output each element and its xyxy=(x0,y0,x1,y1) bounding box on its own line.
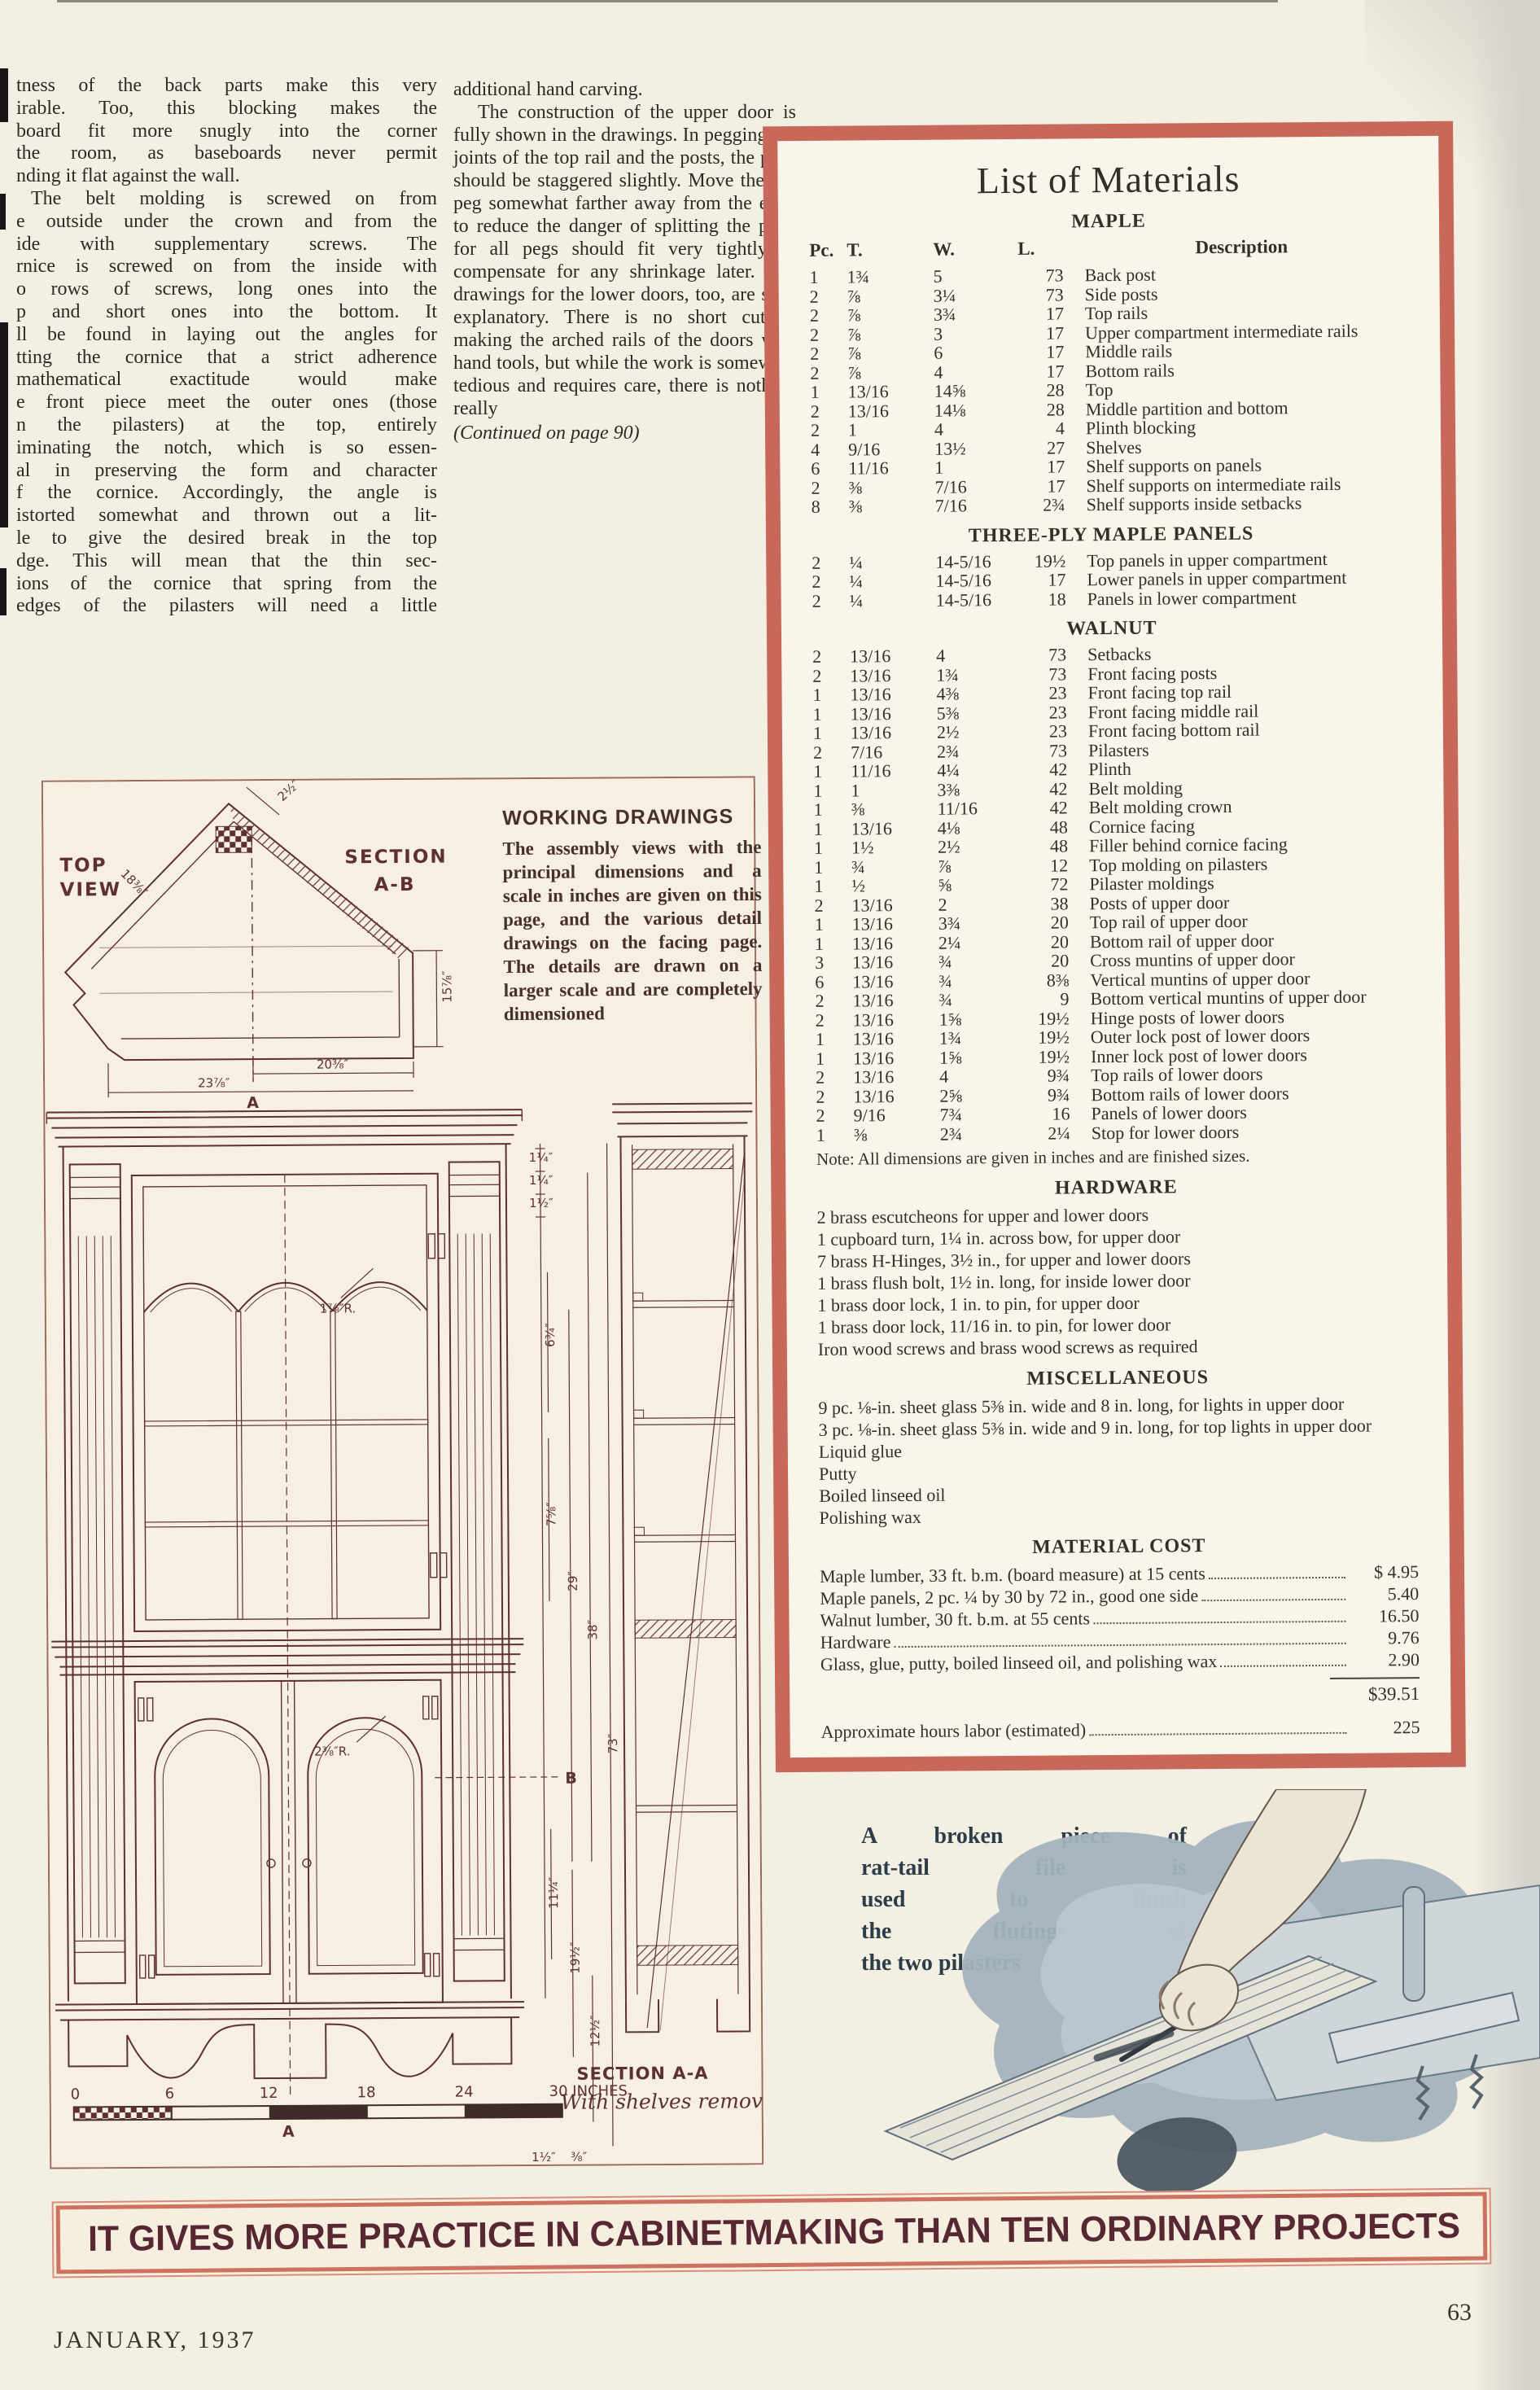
cell-width: ¾ xyxy=(938,990,1023,1009)
cell-thickness: 13/16 xyxy=(853,1029,939,1048)
cell-pieces: 2 xyxy=(812,591,850,611)
cell-thickness: 13/16 xyxy=(851,703,937,723)
cell-length: 19½ xyxy=(1024,1047,1081,1066)
cell-pieces: 1 xyxy=(813,704,851,724)
cell-pieces: 4 xyxy=(811,440,848,459)
cost-label: Hardware xyxy=(820,1631,891,1653)
cell-description: Shelf supports on intermediate rails xyxy=(1076,474,1410,496)
article-line: ll be found in laying out the angles for xyxy=(16,324,437,347)
cell-width: 4⅛ xyxy=(938,817,1022,837)
dot-leader xyxy=(1089,1732,1346,1736)
cell-length: 48 xyxy=(1022,836,1079,856)
cell-thickness: 13/16 xyxy=(850,685,936,704)
cell-thickness: ⅞ xyxy=(847,362,934,382)
cell-width: 4 xyxy=(934,361,1018,381)
cell-width: 1⅝ xyxy=(939,1009,1024,1028)
article-column-1: tness of the back parts make this veryir… xyxy=(16,75,437,618)
cell-pieces: 1 xyxy=(813,724,851,743)
top-view-label: TOP xyxy=(59,855,107,876)
cell-width: 3⅜ xyxy=(937,779,1022,799)
cell-pieces: 2 xyxy=(812,666,850,685)
cell-description: Top xyxy=(1076,378,1410,400)
cell-description: Side posts xyxy=(1075,282,1409,304)
article-line: The belt molding is screwed on from xyxy=(16,188,437,211)
cell-thickness: ⅞ xyxy=(847,305,934,325)
cost-row: Glass, glue, putty, boiled linseed oil, … xyxy=(820,1648,1420,1675)
misc-list: 9 pc. ⅛-in. sheet glass 5⅜ in. wide and … xyxy=(818,1392,1418,1529)
cell-description: Pilasters xyxy=(1078,738,1412,760)
cell-pieces: 1 xyxy=(815,934,852,953)
cell-thickness: 9/16 xyxy=(854,1105,940,1125)
continued-note: (Continued on page 90) xyxy=(453,422,796,444)
header-l: L. xyxy=(1017,238,1074,260)
article-line: the room, as baseboards never permit xyxy=(16,142,437,165)
materials-header-row: Pc. T. W. L. Description xyxy=(809,235,1408,261)
cell-pieces: 2 xyxy=(810,287,847,306)
article-line: dge. This will mean that the thin sec- xyxy=(16,550,437,573)
cell-thickness: 13/16 xyxy=(851,818,938,838)
cell-description: Belt molding xyxy=(1078,777,1412,799)
radius-label-lower: 2⅜″R. xyxy=(314,1744,350,1758)
cell-description: Top rails of lower doors xyxy=(1081,1063,1415,1085)
article-line: e front piece meet the outer ones (those xyxy=(16,392,437,414)
cell-width: 5 xyxy=(933,266,1017,286)
dot-leader xyxy=(1220,1665,1346,1667)
table-row: 8 ⅜ 7/16 2¾ Shelf supports inside setbac… xyxy=(812,492,1411,516)
dot-leader xyxy=(1209,1577,1345,1579)
cell-thickness: 13/16 xyxy=(850,665,936,685)
cell-description: Upper compartment intermediate rails xyxy=(1075,321,1409,343)
scale-tick: 0 xyxy=(71,2086,81,2103)
cell-description: Cross muntins of upper door xyxy=(1080,948,1414,970)
cell-length: 17 xyxy=(1018,304,1075,323)
article-line: tness of the back parts make this very xyxy=(16,75,437,98)
article-line: irable. Too, this blocking makes the xyxy=(16,98,437,120)
section-marker-a-bottom: A xyxy=(282,2123,295,2141)
cell-thickness: 11/16 xyxy=(851,761,937,781)
header-pc: Pc. xyxy=(809,240,847,261)
cell-length: 2¼ xyxy=(1025,1123,1082,1143)
cell-pieces: 1 xyxy=(813,781,851,800)
cell-length: 4 xyxy=(1019,418,1076,438)
cell-pieces: 1 xyxy=(816,1030,853,1049)
cell-width: 7¾ xyxy=(940,1105,1025,1124)
cell-length: 20 xyxy=(1023,951,1080,970)
article-column-2: additional hand carving. The constructio… xyxy=(453,78,796,444)
cell-description: Cornice facing xyxy=(1079,815,1413,837)
cell-thickness: 13/16 xyxy=(851,723,937,742)
issue-date: JANUARY, 1937 xyxy=(54,2327,256,2354)
dim-label: 1½″ xyxy=(529,1196,553,1210)
cell-pieces: 2 xyxy=(812,647,850,667)
cell-description: Middle partition and bottom xyxy=(1076,397,1410,419)
section-aa-subtitle: With shelves removed xyxy=(561,2089,764,2114)
cell-thickness: ⅞ xyxy=(847,286,934,305)
cell-length: 72 xyxy=(1022,874,1079,894)
cell-pieces: 2 xyxy=(816,1087,853,1106)
cell-length: 73 xyxy=(1022,741,1078,760)
cell-thickness: 11/16 xyxy=(848,458,934,478)
banner-frame: IT GIVES MORE PRACTICE IN CABINETMAKING … xyxy=(56,2192,1488,2274)
cell-length: 73 xyxy=(1021,645,1078,664)
header-w: W. xyxy=(933,239,1017,260)
cell-thickness: 13/16 xyxy=(853,1048,939,1067)
article-line: nding it flat against the wall. xyxy=(16,165,437,188)
cell-pieces: 2 xyxy=(815,991,852,1011)
cell-pieces: 1 xyxy=(814,857,851,877)
cell-width: 3¾ xyxy=(934,304,1018,324)
working-drawings-note: WORKING DRAWINGS The assembly views with… xyxy=(502,805,763,1026)
cell-pieces: 2 xyxy=(811,421,848,440)
cell-thickness: 13/16 xyxy=(852,971,938,991)
section-marker-b: B xyxy=(565,1770,577,1788)
cell-width: 2¾ xyxy=(937,741,1022,760)
cell-length: 23 xyxy=(1022,703,1078,722)
section-marker-a: A xyxy=(247,1094,259,1112)
cell-length: 42 xyxy=(1022,759,1078,779)
cell-description: Bottom vertical muntins of upper door xyxy=(1080,987,1414,1009)
cell-description: Posts of upper door xyxy=(1079,891,1413,913)
cell-pieces: 2 xyxy=(816,1106,854,1126)
cell-length: 23 xyxy=(1022,721,1078,741)
cell-length: 8⅜ xyxy=(1023,970,1080,990)
cell-description: Filler behind cornice facing xyxy=(1079,834,1413,856)
cell-pieces: 6 xyxy=(815,972,852,991)
cell-length: 42 xyxy=(1022,798,1079,817)
cell-description: Bottom rail of upper door xyxy=(1080,930,1414,952)
scale-tick: 6 xyxy=(165,2086,175,2103)
cell-width: 4 xyxy=(936,646,1021,665)
article-paragraph: additional hand carving. xyxy=(453,78,796,101)
article-line: p and short ones into the bottom. It xyxy=(16,301,437,324)
cell-length: 18 xyxy=(1021,589,1078,609)
cell-width: 4 xyxy=(934,419,1019,439)
cell-description: Top rail of upper door xyxy=(1080,910,1414,932)
cell-width: 2¼ xyxy=(938,932,1023,952)
cost-total-row: $39.51 xyxy=(820,1677,1420,1709)
labor-label: Approximate hours labor (estimated) xyxy=(820,1718,1086,1743)
dim-label: ⅜″ xyxy=(571,2150,588,2165)
walnut-rows: 2 13/16 4 73 Setbacks 2 13/16 1¾ 73 Fron… xyxy=(812,642,1415,1145)
working-drawings-body: The assembly views with the principal di… xyxy=(502,835,763,1026)
cost-label: Maple lumber, 33 ft. b.m. (board measure… xyxy=(820,1562,1205,1587)
cell-width: 2¾ xyxy=(940,1123,1025,1143)
cell-description: Belt molding crown xyxy=(1079,795,1413,817)
cell-width: 1 xyxy=(934,457,1019,477)
cost-label: Maple panels, 2 pc. ¼ by 30 by 72 in., g… xyxy=(820,1584,1198,1609)
cell-description: Setbacks xyxy=(1078,642,1411,664)
cell-thickness: 9/16 xyxy=(848,439,934,458)
list-of-materials-box: List of Materials MAPLE Pc. T. W. L. Des… xyxy=(763,121,1466,1773)
cell-thickness: 13/16 xyxy=(852,952,938,972)
cell-description: Front facing middle rail xyxy=(1078,700,1412,722)
cell-width: 4 xyxy=(939,1066,1024,1086)
scale-tick: 12 xyxy=(260,2085,278,2102)
cell-pieces: 1 xyxy=(816,1048,853,1068)
cost-amount: 5.40 xyxy=(1349,1582,1419,1605)
cell-thickness: 1¾ xyxy=(847,267,933,287)
section-heading-maple: MAPLE xyxy=(809,208,1408,235)
article-line: f the cornice. Accordingly, the angle is xyxy=(16,482,437,505)
cost-label: Glass, glue, putty, boiled linseed oil, … xyxy=(820,1650,1218,1675)
cell-pieces: 2 xyxy=(812,553,849,572)
cell-pieces: 1 xyxy=(809,268,847,287)
cell-width: 14-5/16 xyxy=(935,571,1020,590)
cell-description: Plinth xyxy=(1078,757,1412,779)
article-line: ide with supplementary screws. The xyxy=(16,234,437,256)
dim-label: 12½″ xyxy=(588,2015,602,2047)
cell-thickness: ¼ xyxy=(850,590,936,610)
cell-length: 9¾ xyxy=(1024,1085,1081,1105)
page-number: 63 xyxy=(1447,2299,1472,2327)
hardware-list: 2 brass escutcheons for upper and lower … xyxy=(816,1202,1416,1360)
cell-pieces: 1 xyxy=(816,1125,854,1145)
cost-list: Maple lumber, 33 ft. b.m. (board measure… xyxy=(820,1561,1420,1675)
cell-pieces: 1 xyxy=(815,915,852,935)
cell-length: 17 xyxy=(1020,570,1077,589)
section-heading-walnut: WALNUT xyxy=(812,615,1411,642)
cell-pieces: 2 xyxy=(813,742,851,762)
section-ab-label: A-B xyxy=(374,874,416,895)
cell-pieces: 1 xyxy=(814,838,851,858)
dim-label: 11¼″ xyxy=(546,1876,561,1909)
cell-description: Outer lock post of lower doors xyxy=(1081,1025,1415,1047)
banner-text: IT GIVES MORE PRACTICE IN CABINETMAKING … xyxy=(88,2206,1460,2260)
cell-width: ⅝ xyxy=(938,875,1022,895)
dim-label: 1½″ xyxy=(532,2150,556,2165)
dim-label: 1¼″ xyxy=(529,1173,553,1188)
scan-edge-mark xyxy=(0,568,7,615)
cell-width: 3¼ xyxy=(934,285,1018,304)
cell-width: ¾ xyxy=(938,970,1023,990)
cell-pieces: 2 xyxy=(810,344,847,364)
cell-pieces: 2 xyxy=(816,1068,853,1088)
cost-amount: 2.90 xyxy=(1350,1648,1420,1671)
cell-width: 14-5/16 xyxy=(936,589,1021,609)
article-line: al in preserving the form and character xyxy=(16,460,437,483)
cell-thickness: 1 xyxy=(851,780,937,799)
cell-length: 9¾ xyxy=(1024,1066,1081,1085)
scan-edge-mark xyxy=(0,68,8,122)
section-heading-cost: MATERIAL COST xyxy=(820,1534,1419,1561)
cell-pieces: 1 xyxy=(812,685,850,705)
cell-width: 13½ xyxy=(934,438,1019,457)
cell-length: 23 xyxy=(1021,683,1078,703)
cell-length: 17 xyxy=(1018,342,1075,361)
cell-length: 2¾ xyxy=(1020,495,1077,514)
cell-width: 4¼ xyxy=(937,760,1022,780)
cell-pieces: 8 xyxy=(812,497,849,517)
cell-thickness: ¼ xyxy=(849,571,935,591)
cell-description: Front facing top rail xyxy=(1078,681,1411,703)
cell-length: 28 xyxy=(1019,400,1076,419)
cell-pieces: 1 xyxy=(814,877,851,896)
cell-pieces: 2 xyxy=(810,325,847,344)
cell-thickness: 13/16 xyxy=(851,895,938,914)
cost-amount: 9.76 xyxy=(1350,1626,1420,1649)
cell-thickness: ⅜ xyxy=(849,497,935,516)
dim-label: 15⅞″ xyxy=(440,970,454,1003)
cell-thickness: ⅜ xyxy=(854,1124,940,1144)
cell-thickness: ⅜ xyxy=(851,799,938,819)
labor-row: Approximate hours labor (estimated) 225 xyxy=(820,1716,1420,1743)
bottom-banner: IT GIVES MORE PRACTICE IN CABINETMAKING … xyxy=(52,2188,1492,2278)
cell-thickness: 1½ xyxy=(851,838,938,857)
threeply-rows: 2 ¼ 14-5/16 19½ Top panels in upper comp… xyxy=(812,549,1411,611)
dot-leader xyxy=(1093,1621,1345,1624)
cell-thickness: 13/16 xyxy=(853,1009,939,1029)
header-t: T. xyxy=(847,239,933,261)
cell-thickness: 13/16 xyxy=(848,401,934,420)
cell-thickness: 13/16 xyxy=(848,382,934,401)
cost-amount: $ 4.95 xyxy=(1349,1561,1419,1583)
cell-width: 1¾ xyxy=(939,1028,1024,1048)
cell-description: Panels in lower compartment xyxy=(1078,587,1411,609)
cell-thickness: ¼ xyxy=(849,552,935,571)
dim-label: 20⅜″ xyxy=(317,1057,349,1071)
cell-description: Middle rails xyxy=(1075,339,1409,361)
article-line: istorted somewhat and thrown out a lit- xyxy=(16,505,437,527)
cell-width: 7/16 xyxy=(934,476,1019,496)
cell-length: 28 xyxy=(1019,380,1076,400)
article-line: n the pilasters) at the top, entirely xyxy=(16,414,437,437)
cell-thickness: ⅜ xyxy=(848,477,934,497)
cell-pieces: 2 xyxy=(812,572,849,592)
cell-thickness: ¾ xyxy=(851,856,938,876)
cell-thickness: 13/16 xyxy=(853,1067,939,1087)
article-line: mathematical exactitude would make xyxy=(16,369,437,392)
cell-description: Top panels in upper compartment xyxy=(1077,549,1411,571)
maple-rows: 1 1¾ 5 73 Back post 2 ⅞ 3¼ 73 Side posts… xyxy=(809,263,1410,516)
cell-description: Pilaster moldings xyxy=(1079,872,1413,894)
cell-length: 20 xyxy=(1023,913,1080,932)
dimensions-note: Note: All dimensions are given in inches… xyxy=(816,1145,1415,1170)
cell-thickness: 13/16 xyxy=(852,991,938,1010)
article-line: le to give the desired break in the top xyxy=(16,527,437,550)
table-row: 2 ¼ 14-5/16 18 Panels in lower compartme… xyxy=(812,587,1411,611)
clamp-handle xyxy=(1403,1887,1424,2001)
cell-width: 1¾ xyxy=(936,664,1021,684)
scale-tick: 24 xyxy=(455,2083,474,2100)
cell-width: 1⅝ xyxy=(939,1047,1024,1066)
cell-thickness: ⅞ xyxy=(847,344,934,363)
cell-description: Top rails xyxy=(1075,301,1409,323)
section-heading-hardware: HARDWARE xyxy=(816,1175,1415,1202)
cell-pieces: 3 xyxy=(815,953,852,973)
rat-tail-file-illustration xyxy=(853,1789,1540,2164)
article-line: rnice is screwed on from the inside with xyxy=(16,256,437,278)
article-line: tting the cornice that a strict adherenc… xyxy=(16,347,437,370)
cell-width: 3 xyxy=(934,323,1018,343)
article-line: iminating the notch, which is so essen- xyxy=(16,437,437,460)
cell-length: 16 xyxy=(1025,1104,1082,1123)
hardware-item: Iron wood screws and brass wood screws a… xyxy=(818,1333,1417,1360)
cell-length: 19½ xyxy=(1024,1009,1081,1028)
cell-pieces: 1 xyxy=(814,819,851,838)
cell-width: 2⅝ xyxy=(939,1085,1024,1105)
cell-pieces: 1 xyxy=(811,383,848,402)
cell-description: Back post xyxy=(1074,263,1408,285)
working-drawings-title: WORKING DRAWINGS xyxy=(502,805,761,830)
article-line: board fit more snugly into the corner xyxy=(16,120,437,143)
article-line: o rows of screws, long ones into the xyxy=(16,278,437,301)
cell-width: 2 xyxy=(938,894,1022,913)
cell-pieces: 6 xyxy=(811,459,848,479)
cell-width: 14⅛ xyxy=(934,400,1019,419)
section-heading-misc: MISCELLANEOUS xyxy=(818,1365,1417,1392)
cell-length: 17 xyxy=(1018,361,1075,381)
cell-pieces: 2 xyxy=(811,478,848,497)
dim-label: 73″ xyxy=(606,1733,620,1753)
cell-description: Plinth blocking xyxy=(1076,416,1410,438)
labor-value: 225 xyxy=(1350,1716,1420,1739)
cell-width: ¾ xyxy=(938,952,1023,971)
cell-description: Shelves xyxy=(1076,436,1410,457)
cell-description: Top molding on pilasters xyxy=(1079,853,1413,875)
dim-label: 6¾″ xyxy=(543,1323,558,1347)
cell-description: Bottom rails xyxy=(1075,359,1409,381)
dim-label: 19½″ xyxy=(568,1941,583,1974)
cell-width: 11/16 xyxy=(938,799,1022,818)
dim-label: 29″ xyxy=(566,1571,580,1591)
cell-width: 7/16 xyxy=(935,496,1020,515)
header-description: Description xyxy=(1074,235,1408,259)
cell-thickness: 7/16 xyxy=(851,742,937,761)
cell-description: Panels of lower doors xyxy=(1082,1101,1415,1123)
cell-thickness: 13/16 xyxy=(853,1086,939,1105)
cell-length: 38 xyxy=(1022,894,1079,913)
cell-description: Inner lock post of lower doors xyxy=(1081,1044,1415,1066)
cell-length: 73 xyxy=(1021,664,1078,684)
article-line: e outside under the crown and from the xyxy=(16,211,437,234)
dim-label: 23⅞″ xyxy=(198,1075,230,1090)
cell-thickness: ⅞ xyxy=(847,324,934,344)
section-ab-label: SECTION xyxy=(344,847,447,869)
cell-pieces: 2 xyxy=(814,895,851,915)
cost-total: $39.51 xyxy=(1330,1677,1420,1705)
cell-thickness: 13/16 xyxy=(852,933,938,952)
cost-label: Walnut lumber, 30 ft. b.m. at 55 cents xyxy=(820,1607,1090,1631)
section-aa-label: SECTION A-A xyxy=(576,2064,708,2084)
cell-width: 2½ xyxy=(937,722,1022,742)
cell-length: 73 xyxy=(1017,265,1074,285)
cell-length: 9 xyxy=(1023,989,1080,1009)
cost-amount: 16.50 xyxy=(1349,1604,1419,1627)
cell-width: 14-5/16 xyxy=(935,551,1020,571)
cell-width: 5⅜ xyxy=(937,703,1022,722)
scale-tick: 18 xyxy=(357,2084,376,2101)
cell-length: 27 xyxy=(1019,438,1076,457)
radius-label-upper: 1⅞″R. xyxy=(320,1301,356,1315)
cell-length: 19½ xyxy=(1024,1027,1081,1047)
magazine-page: tness of the back parts make this veryir… xyxy=(0,0,1540,2390)
page-edge-top xyxy=(57,0,1278,2)
misc-item: 3 pc. ⅛-in. sheet glass 5⅜ in. wide and … xyxy=(819,1414,1418,1441)
article-paragraph: The construction of the upper door is fu… xyxy=(453,101,796,420)
cell-length: 20 xyxy=(1023,932,1080,952)
scan-edge-mark xyxy=(0,194,6,230)
cell-width: 6 xyxy=(934,343,1018,362)
cell-pieces: 2 xyxy=(810,306,847,326)
cell-description: Shelf supports on panels xyxy=(1076,454,1410,476)
cell-description: Front facing posts xyxy=(1078,662,1411,684)
article-line: edges of the pilasters will need a littl… xyxy=(16,595,437,618)
cell-width: 3¾ xyxy=(938,913,1023,933)
cell-width: 4⅜ xyxy=(936,684,1021,703)
cell-description: Bottom rails of lower doors xyxy=(1081,1083,1415,1105)
cell-length: 73 xyxy=(1018,285,1075,304)
section-heading-threeply: THREE-PLY MAPLE PANELS xyxy=(812,522,1411,549)
